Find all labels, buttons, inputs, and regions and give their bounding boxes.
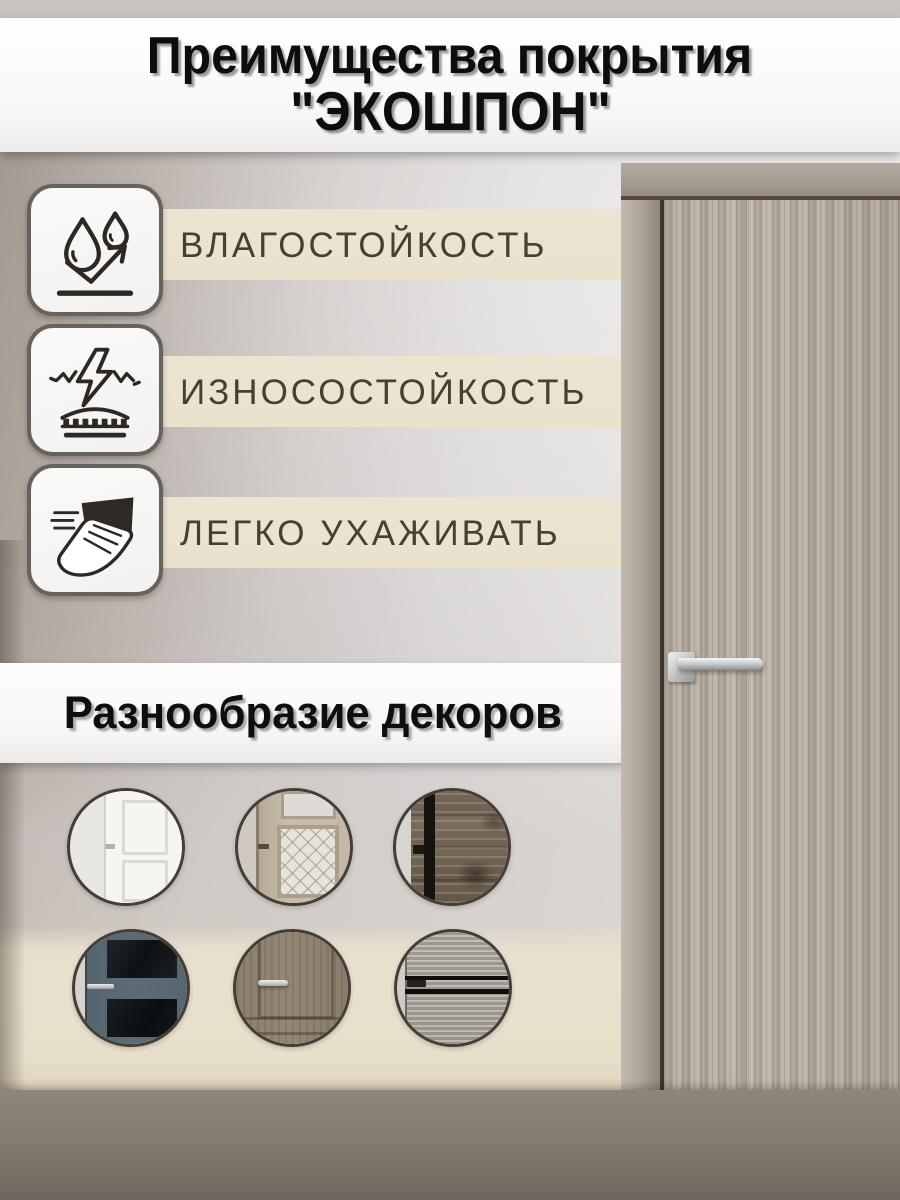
page-title-line1: Преимущества покрытия [147, 29, 752, 83]
footer-band [0, 1090, 900, 1200]
decor-sample-glass-ornament [235, 788, 353, 906]
left-edge-shadow [0, 540, 26, 1090]
feature-label-moisture: ВЛАГОСТОЙКОСТЬ [180, 226, 547, 266]
door-photo [618, 150, 900, 1090]
feature-label-wear: ИЗНОСОСТОЙКОСТЬ [180, 373, 588, 413]
decor-sample-taupe-classic [233, 929, 351, 1047]
water-drops-icon [47, 202, 143, 298]
door-seam-line [745, 200, 747, 1090]
promo-image: Преимущества покрытия "ЭКОШПОН" [0, 0, 900, 1200]
decors-banner: Разнообразие декоров [0, 663, 625, 763]
decor-sample-dark-rustic [393, 788, 511, 906]
decor-sample-blue-glass [72, 929, 190, 1047]
top-strip [0, 0, 900, 18]
door-frame-jamb [621, 200, 660, 1090]
header-banner: Преимущества покрытия "ЭКОШПОН" [0, 18, 900, 152]
feature-label-care: ЛЕГКО УХАЖИВАТЬ [180, 514, 561, 554]
wipe-hand-icon [47, 482, 143, 578]
decor-sample-white-classic [67, 788, 185, 906]
decor-sample-gray-slats [394, 929, 512, 1047]
door-slab [664, 200, 900, 1090]
feature-icon-box-2 [27, 324, 163, 456]
page-title-line2: "ЭКОШПОН" [290, 83, 611, 140]
door-frame-top [621, 163, 900, 200]
door-handle-lever [678, 658, 763, 670]
feature-icon-box-3 [27, 464, 163, 596]
decors-title: Разнообразие декоров [63, 687, 561, 739]
feature-icon-box-1 [27, 184, 163, 316]
impact-resistance-icon [47, 342, 143, 438]
